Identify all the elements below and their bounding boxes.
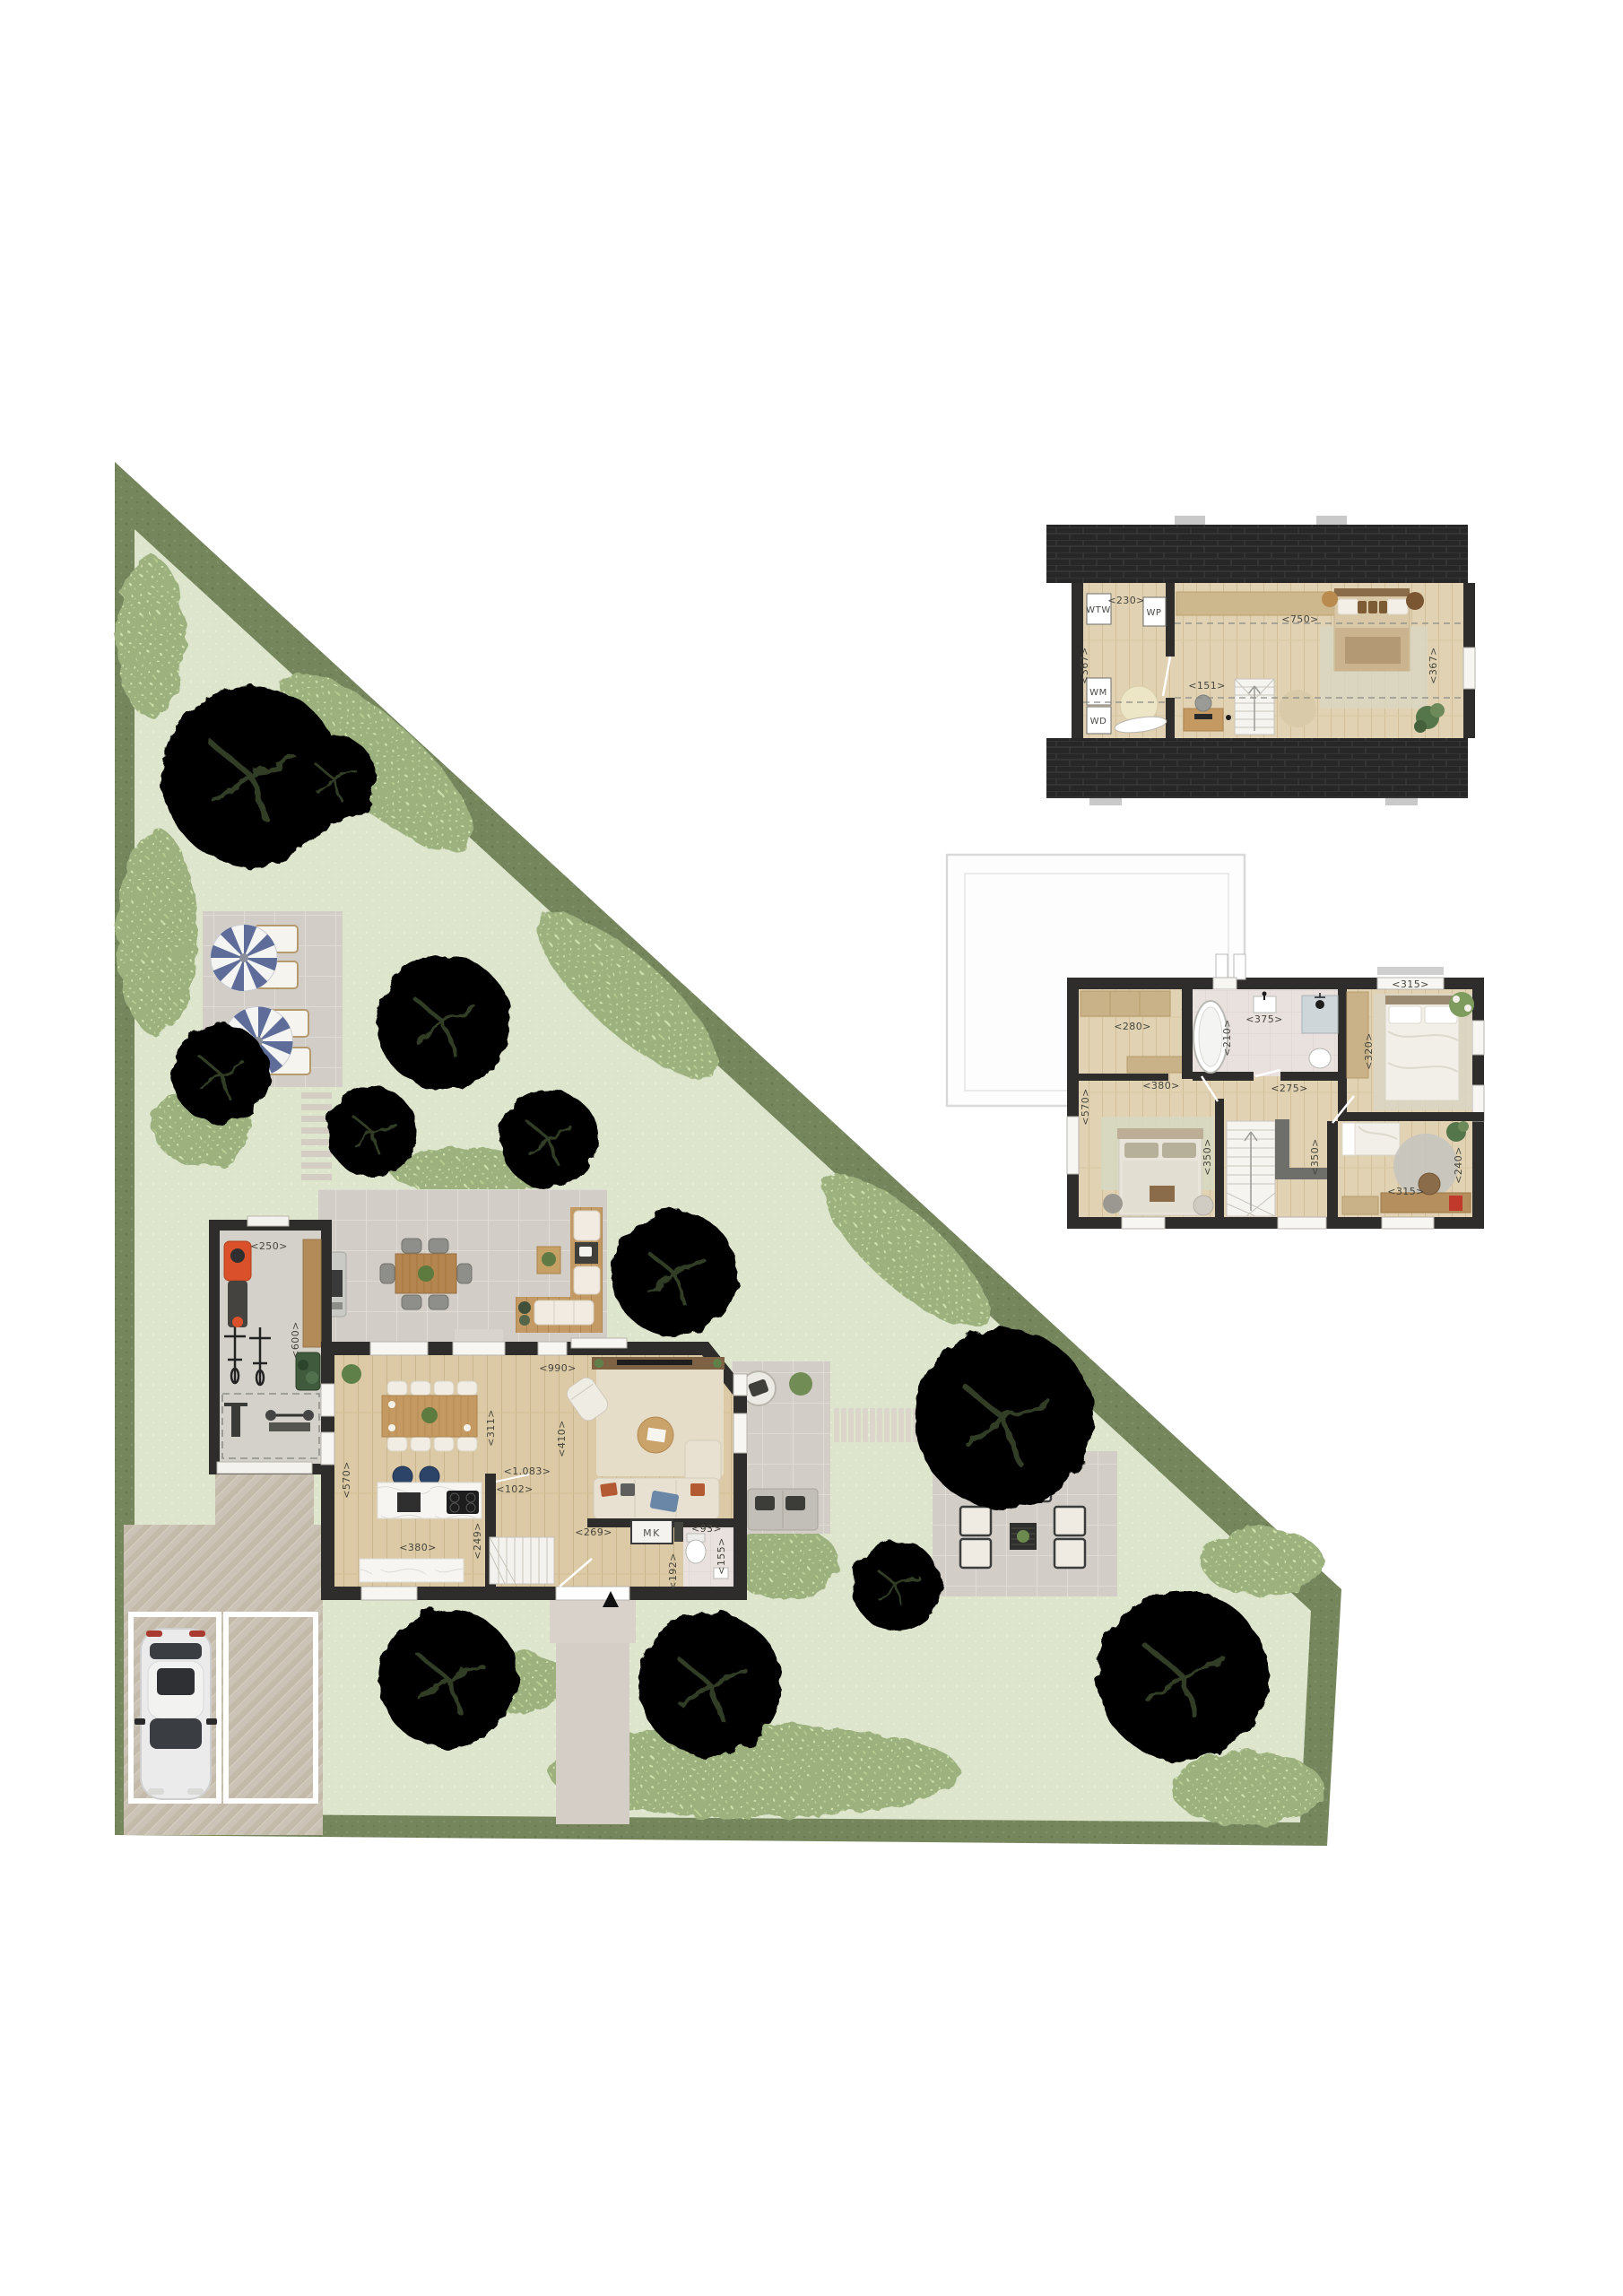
tree xyxy=(852,1541,942,1631)
roof-band xyxy=(1046,738,1468,798)
dimension-label: <350> xyxy=(1202,1138,1213,1175)
wd-label: WD xyxy=(1090,717,1107,726)
armchair xyxy=(960,1539,991,1568)
tree xyxy=(377,955,511,1090)
dimension-label: <192> xyxy=(667,1552,679,1589)
dimension-label: <990> xyxy=(539,1362,576,1374)
indoor-plant xyxy=(342,1364,361,1384)
dimension-label: <320> xyxy=(1363,1032,1375,1069)
attic-plan: WTW WP WM WD <230> <367> <151> <750> <36… xyxy=(1046,516,1475,805)
fire-pit-table xyxy=(1010,1523,1037,1550)
dimension-label: <155> xyxy=(716,1537,727,1574)
armchair xyxy=(960,1507,991,1535)
stairs xyxy=(490,1537,554,1584)
dimension-label: <375> xyxy=(1245,1013,1282,1025)
shower xyxy=(1302,993,1338,1033)
wp-label: WP xyxy=(1146,608,1161,618)
north-terrace xyxy=(314,1189,607,1345)
parasol-icon xyxy=(211,925,277,991)
dimension-label: <367> xyxy=(1079,647,1090,683)
attic-stairs xyxy=(1235,679,1274,735)
dimension-label: <311> xyxy=(485,1409,497,1446)
dimension-label: <315> xyxy=(1387,1186,1424,1197)
dimension-label: <570> xyxy=(1080,1088,1091,1125)
wtw-label: WTW xyxy=(1086,605,1111,615)
tree xyxy=(612,1211,737,1336)
dimension-label: <410> xyxy=(556,1420,568,1457)
double-bed xyxy=(1117,1128,1203,1215)
dimension-label: <570> xyxy=(341,1461,352,1498)
dimension-label: <350> xyxy=(1309,1138,1321,1175)
dimension-label: <367> xyxy=(1428,647,1439,683)
attic-lounge-chair xyxy=(1279,690,1316,727)
basket xyxy=(1406,592,1424,610)
dining-table xyxy=(382,1381,477,1451)
dimension-label: <1.083> xyxy=(504,1465,551,1477)
driveway xyxy=(124,1473,323,1835)
double-bed xyxy=(1334,588,1410,671)
dimension-label: <102> xyxy=(496,1483,533,1495)
tree xyxy=(379,1610,518,1749)
shrub-ball xyxy=(789,1372,812,1396)
dimension-label: <230> xyxy=(1107,595,1144,606)
attic-window xyxy=(1463,648,1475,689)
single-bed xyxy=(1342,1123,1400,1155)
dimension-label: <600> xyxy=(290,1321,301,1358)
front-step xyxy=(550,1598,636,1643)
lawn-mower xyxy=(224,1241,251,1327)
flower-plant xyxy=(1449,992,1474,1017)
workbench xyxy=(303,1239,321,1347)
dimension-label: <275> xyxy=(1271,1083,1307,1094)
dimension-label: <210> xyxy=(1221,1019,1233,1056)
dimension-label: <249> xyxy=(472,1522,483,1559)
tree xyxy=(291,735,377,822)
tree xyxy=(171,1024,270,1123)
first-floor-plan: <280> <375> <210> <315> <320> <570> <380… xyxy=(947,855,1484,1229)
basket xyxy=(1322,591,1338,607)
tree xyxy=(327,1087,417,1177)
pouf xyxy=(1103,1194,1123,1213)
tree xyxy=(638,1613,782,1756)
dimension-label: <269> xyxy=(575,1526,612,1538)
armchair xyxy=(1055,1507,1085,1535)
dimension-label: <315> xyxy=(1392,978,1428,990)
dimension-label: <93> xyxy=(691,1523,722,1535)
garden-sofa xyxy=(748,1489,818,1530)
armchair xyxy=(1055,1539,1085,1568)
deck-mat xyxy=(537,1247,560,1274)
garage xyxy=(209,1216,332,1474)
car xyxy=(135,1629,217,1799)
tree xyxy=(1097,1590,1267,1761)
mk-label: MK xyxy=(643,1527,661,1539)
double-bed xyxy=(1385,996,1459,1100)
dimension-label: <380> xyxy=(1142,1080,1179,1091)
floor-plan-page: <250> <600> <990> <311> <410> <570> <1.0… xyxy=(0,0,1623,2296)
wm-label: WM xyxy=(1089,688,1107,698)
tree xyxy=(499,1090,598,1188)
tree xyxy=(915,1329,1094,1509)
toilet xyxy=(1309,1048,1331,1068)
roof-band xyxy=(1046,525,1468,583)
dimension-label: <280> xyxy=(1114,1021,1150,1032)
knee-wall-storage xyxy=(1176,592,1341,615)
dimension-label: <250> xyxy=(250,1240,287,1252)
kitchen-counter xyxy=(360,1559,464,1582)
dimension-label: <380> xyxy=(399,1542,436,1553)
dimension-label: <151> xyxy=(1188,680,1225,691)
drawer-unit xyxy=(1342,1196,1378,1214)
dimension-label: <240> xyxy=(1453,1146,1464,1183)
coffee-table xyxy=(638,1417,673,1453)
garage-door-top xyxy=(247,1216,289,1226)
garage-door-bottom xyxy=(217,1462,312,1474)
dimension-label: <750> xyxy=(1281,613,1318,625)
toilet xyxy=(686,1540,706,1563)
pouf xyxy=(1193,1196,1213,1215)
